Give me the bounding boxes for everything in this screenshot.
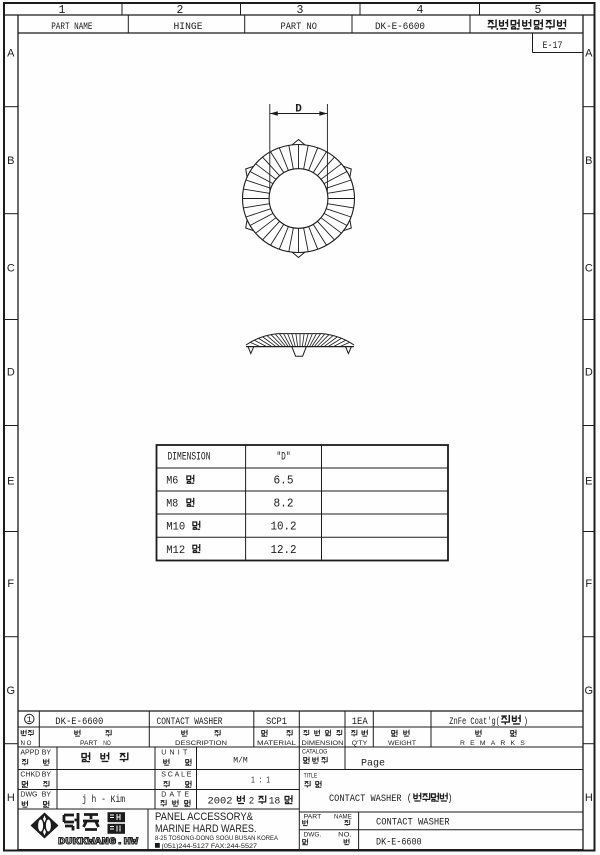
svg-text:D: D xyxy=(7,367,15,379)
svg-text:UNIT: UNIT xyxy=(161,750,190,757)
svg-text:HINGE: HINGE xyxy=(174,21,203,33)
svg-text:E-17: E-17 xyxy=(543,40,563,52)
svg-text:F: F xyxy=(7,578,14,590)
svg-text:NAME: NAME xyxy=(334,814,352,821)
svg-text:B: B xyxy=(7,155,14,167)
svg-text:j h - Kim: j h - Kim xyxy=(82,794,125,806)
svg-text:): ) xyxy=(448,793,453,805)
svg-text:M12: M12 xyxy=(166,545,185,557)
svg-text:D: D xyxy=(585,367,593,379)
svg-text:A: A xyxy=(7,48,15,60)
svg-text:2002: 2002 xyxy=(208,796,233,808)
svg-text:F: F xyxy=(585,578,592,590)
svg-text:ZnFe Coat'g(: ZnFe Coat'g( xyxy=(449,716,500,728)
svg-text:2: 2 xyxy=(249,796,255,808)
svg-text:TITLE: TITLE xyxy=(304,773,318,780)
svg-text:): ) xyxy=(524,716,529,728)
svg-text:CONTACT WASHER: CONTACT WASHER xyxy=(157,716,224,728)
svg-text:DK-E-6600: DK-E-6600 xyxy=(375,21,425,33)
svg-text:SCALE: SCALE xyxy=(161,772,193,779)
svg-text:8-25 TOSONG-DONG SOGU BUSAN KO: 8-25 TOSONG-DONG SOGU BUSAN KOREA xyxy=(155,835,278,842)
svg-text:DWG.: DWG. xyxy=(304,832,322,839)
svg-text:CHKD: CHKD xyxy=(20,772,40,779)
svg-text:DIMENSION: DIMENSION xyxy=(168,452,211,464)
svg-text:4: 4 xyxy=(417,4,424,17)
svg-text:H: H xyxy=(585,792,593,804)
svg-text:DESCRIPTION: DESCRIPTION xyxy=(175,740,227,747)
svg-text:18: 18 xyxy=(269,796,281,808)
svg-text:Page: Page xyxy=(361,757,385,769)
svg-text:Q'TY: Q'TY xyxy=(352,740,368,747)
svg-text:SCP1: SCP1 xyxy=(266,716,287,728)
svg-text:BY: BY xyxy=(42,772,52,779)
svg-text:M6: M6 xyxy=(166,476,178,488)
svg-text:8.2: 8.2 xyxy=(274,498,294,511)
svg-text:D: D xyxy=(295,104,302,116)
svg-text:CONTACT WASHER (: CONTACT WASHER ( xyxy=(329,793,412,805)
svg-text:DK-E-6600: DK-E-6600 xyxy=(55,716,103,728)
svg-text:PART: PART xyxy=(80,740,97,747)
svg-text:6.5: 6.5 xyxy=(274,475,294,488)
svg-text:CATALOG: CATALOG xyxy=(302,749,327,756)
svg-text:N O: N O xyxy=(21,740,32,747)
svg-text:WEIGHT: WEIGHT xyxy=(388,740,416,747)
svg-text:1 : 1: 1 : 1 xyxy=(251,774,270,785)
svg-text:1EA: 1EA xyxy=(352,716,369,728)
svg-text:M/M: M/M xyxy=(233,756,248,765)
svg-text:5: 5 xyxy=(535,4,542,17)
svg-text:12.2: 12.2 xyxy=(271,544,297,557)
svg-text:C: C xyxy=(7,263,15,275)
svg-text:DK-E-6600: DK-E-6600 xyxy=(376,836,422,848)
svg-text:PART: PART xyxy=(304,814,322,821)
svg-text:1: 1 xyxy=(59,4,66,17)
svg-text:(051)244-5127 FAX:244-5527: (051)244-5127 FAX:244-5527 xyxy=(162,843,258,850)
svg-text:3: 3 xyxy=(297,4,304,17)
svg-text:PANEL ACCESSORY&: PANEL ACCESSORY& xyxy=(155,811,254,823)
svg-text:NO.: NO. xyxy=(338,832,351,839)
svg-text:B: B xyxy=(585,155,592,167)
svg-text:E: E xyxy=(585,476,592,488)
svg-text:PART NAME: PART NAME xyxy=(51,21,92,33)
svg-text:E: E xyxy=(7,476,14,488)
svg-text:DUKKWANG.HW: DUKKWANG.HW xyxy=(58,836,139,848)
svg-text:REMARKS: REMARKS xyxy=(460,740,530,747)
svg-text:NO: NO xyxy=(103,740,110,747)
svg-text:A: A xyxy=(585,48,593,60)
svg-text:BY: BY xyxy=(42,792,52,799)
svg-text:"D": "D" xyxy=(277,452,291,464)
svg-text:PART NO: PART NO xyxy=(281,21,317,33)
svg-text:M8: M8 xyxy=(166,499,178,511)
svg-text:DWG: DWG xyxy=(20,792,37,799)
svg-text:MARINE HARD WARES.: MARINE HARD WARES. xyxy=(155,823,257,835)
svg-text:10.2: 10.2 xyxy=(271,521,297,534)
svg-text:1: 1 xyxy=(27,715,32,725)
svg-text:C: C xyxy=(585,263,593,275)
svg-text:H: H xyxy=(7,792,15,804)
svg-text:APPD: APPD xyxy=(20,750,39,757)
svg-text:DATE: DATE xyxy=(161,792,192,799)
svg-text:BY: BY xyxy=(42,750,52,757)
svg-text:2: 2 xyxy=(177,4,184,17)
svg-text:G: G xyxy=(585,685,594,697)
svg-text:CONTACT WASHER: CONTACT WASHER xyxy=(376,816,450,828)
svg-text:DIMENSION: DIMENSION xyxy=(302,740,344,747)
svg-text:M10: M10 xyxy=(166,522,185,534)
svg-text:MATERIAL: MATERIAL xyxy=(257,740,296,747)
svg-text:G: G xyxy=(7,685,16,697)
